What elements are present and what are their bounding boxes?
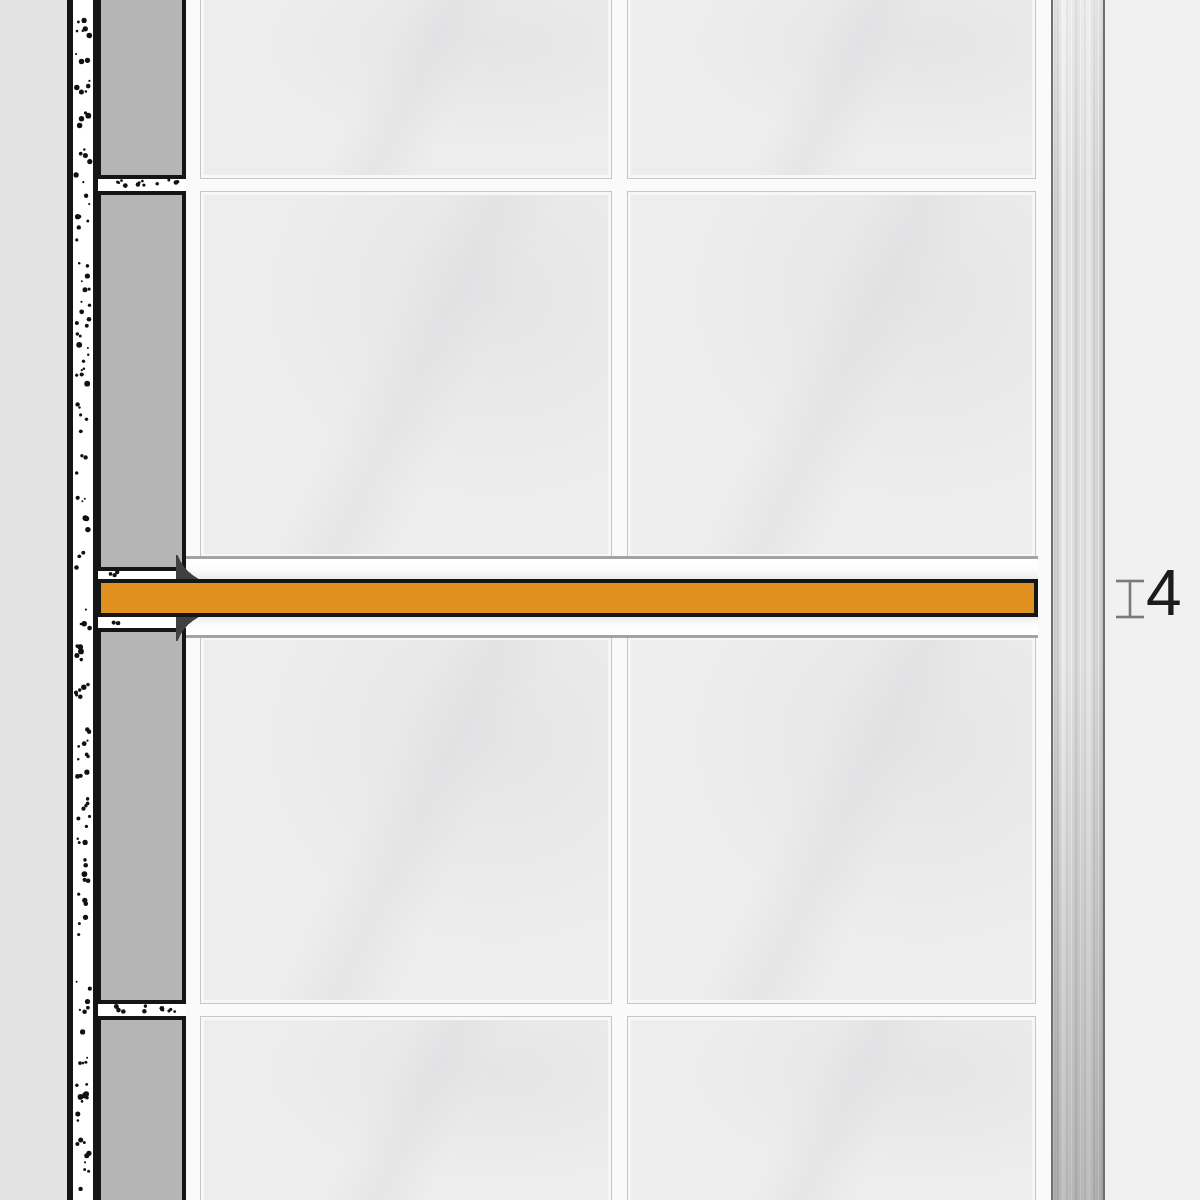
wall-tile bbox=[200, 636, 612, 1004]
wall-tile bbox=[627, 191, 1036, 558]
height-measure-icon bbox=[1112, 574, 1148, 624]
wall-tile bbox=[627, 1016, 1036, 1200]
wall-tile bbox=[627, 0, 1036, 179]
wall-tile bbox=[200, 0, 612, 179]
tile-profile-installation-diagram: 4 bbox=[0, 0, 1200, 1200]
dimension-label: 4 bbox=[1146, 561, 1200, 627]
wall-tile bbox=[627, 636, 1036, 1004]
wall-tile bbox=[200, 191, 612, 558]
wall-tile bbox=[200, 1016, 612, 1200]
steel-edge-profile bbox=[1051, 0, 1105, 1200]
tile-bottom-edge-band bbox=[186, 556, 1038, 579]
tile-top-edge-band bbox=[186, 617, 1038, 638]
orange-shelf-profile bbox=[97, 579, 1038, 617]
